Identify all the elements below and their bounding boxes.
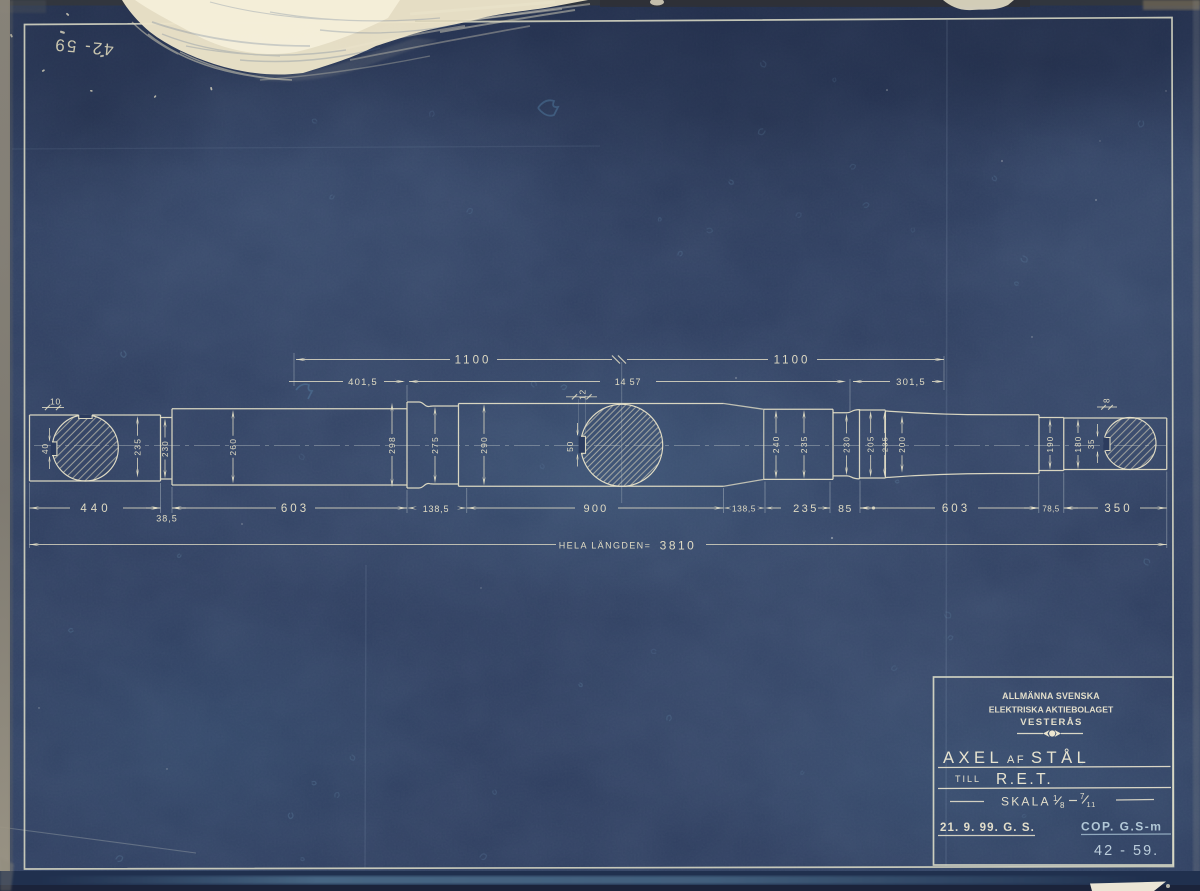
svg-text:260: 260	[228, 438, 238, 456]
svg-text:R.E.T.: R.E.T.	[996, 771, 1053, 788]
svg-text:230: 230	[842, 436, 851, 453]
svg-text:38,5: 38,5	[156, 514, 178, 524]
svg-text:10: 10	[50, 397, 61, 407]
svg-text:SKALA: SKALA	[1001, 795, 1051, 809]
svg-text:401,5: 401,5	[348, 377, 378, 388]
svg-text:8: 8	[1060, 801, 1065, 810]
svg-text:440: 440	[80, 503, 111, 515]
svg-text:275: 275	[430, 436, 440, 454]
svg-text:ALLMÄNNA SVENSKA: ALLMÄNNA SVENSKA	[1002, 691, 1100, 701]
svg-text:ELEKTRISKA AKTIEBOLAGET: ELEKTRISKA AKTIEBOLAGET	[989, 705, 1114, 715]
svg-text:298: 298	[387, 436, 397, 454]
svg-text:STÅL: STÅL	[1031, 748, 1090, 767]
svg-text:TILL: TILL	[955, 774, 981, 784]
svg-text:350: 350	[1104, 503, 1132, 515]
svg-text:8: 8	[1102, 398, 1111, 403]
svg-text:AXEL: AXEL	[943, 749, 1003, 767]
svg-text:21. 9. 99. G. S.: 21. 9. 99. G. S.	[940, 822, 1035, 834]
svg-text:138,5: 138,5	[732, 504, 756, 514]
svg-text:40: 40	[40, 443, 50, 454]
svg-text:900: 900	[584, 503, 609, 515]
svg-text:78,5: 78,5	[1042, 505, 1059, 514]
svg-text:1100: 1100	[774, 355, 811, 367]
svg-text:200: 200	[898, 436, 907, 453]
svg-text:50: 50	[565, 441, 575, 452]
svg-text:603: 603	[942, 503, 970, 515]
svg-text:235: 235	[793, 503, 819, 515]
svg-text:COP. G.S-m: COP. G.S-m	[1081, 820, 1162, 834]
svg-text:11: 11	[1087, 800, 1097, 809]
svg-text:205: 205	[866, 436, 875, 453]
svg-text:180: 180	[1074, 436, 1083, 453]
svg-text:3810: 3810	[660, 539, 697, 553]
svg-text:301,5: 301,5	[896, 377, 926, 388]
svg-text:42 - 59.: 42 - 59.	[1094, 843, 1159, 859]
svg-text:AF: AF	[1007, 754, 1026, 766]
svg-text:85: 85	[838, 503, 853, 515]
svg-text:14 57: 14 57	[615, 377, 642, 387]
svg-text:138,5: 138,5	[423, 504, 450, 514]
svg-text:12: 12	[578, 389, 588, 400]
svg-text:1100: 1100	[455, 355, 492, 367]
svg-text:235: 235	[132, 438, 142, 456]
svg-text:290: 290	[479, 436, 489, 454]
svg-text:VESTERÅS: VESTERÅS	[1020, 717, 1082, 728]
svg-text:240: 240	[771, 435, 781, 453]
svg-text:190: 190	[1046, 436, 1055, 453]
svg-text:35: 35	[1087, 439, 1096, 449]
svg-text:230: 230	[161, 440, 170, 457]
svg-text:235: 235	[880, 436, 889, 452]
svg-text:603: 603	[281, 503, 309, 515]
svg-text:235: 235	[799, 435, 809, 453]
svg-text:HELA LÄNGDEN=: HELA LÄNGDEN=	[559, 541, 651, 551]
